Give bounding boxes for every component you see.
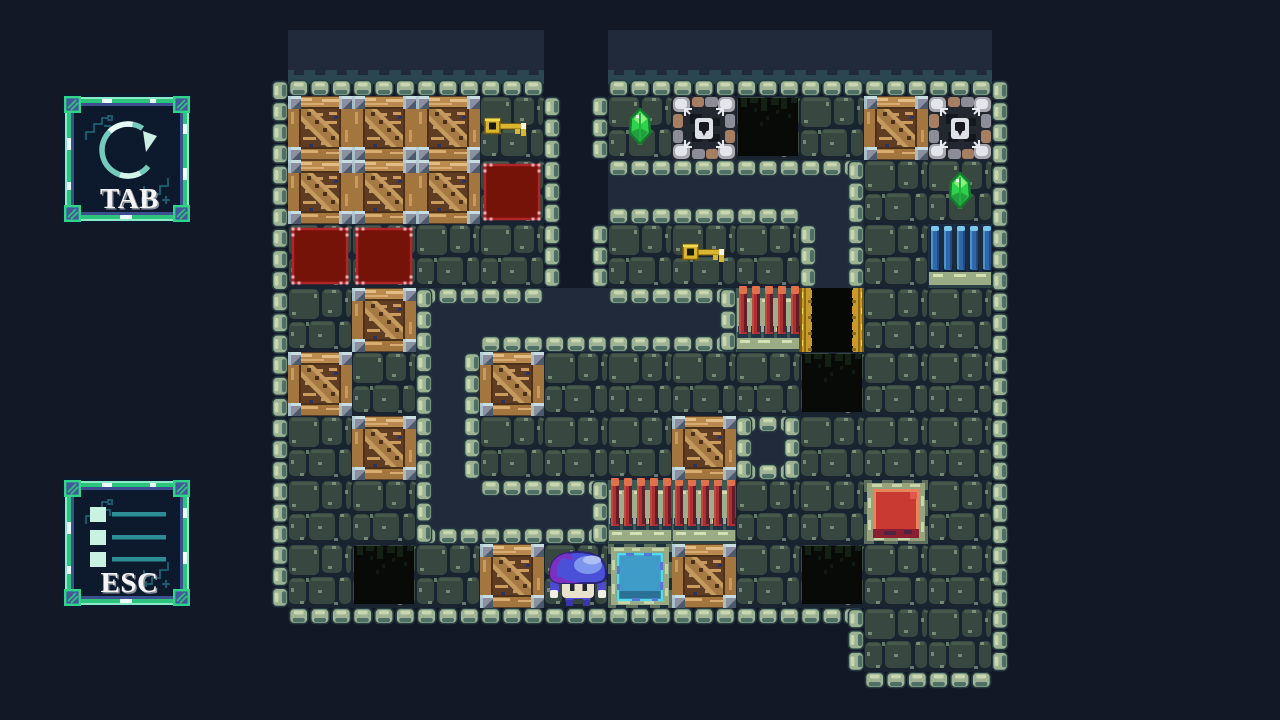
svg-text:TAB: TAB bbox=[100, 183, 159, 215]
svg-text:ESC: ESC bbox=[101, 567, 159, 599]
